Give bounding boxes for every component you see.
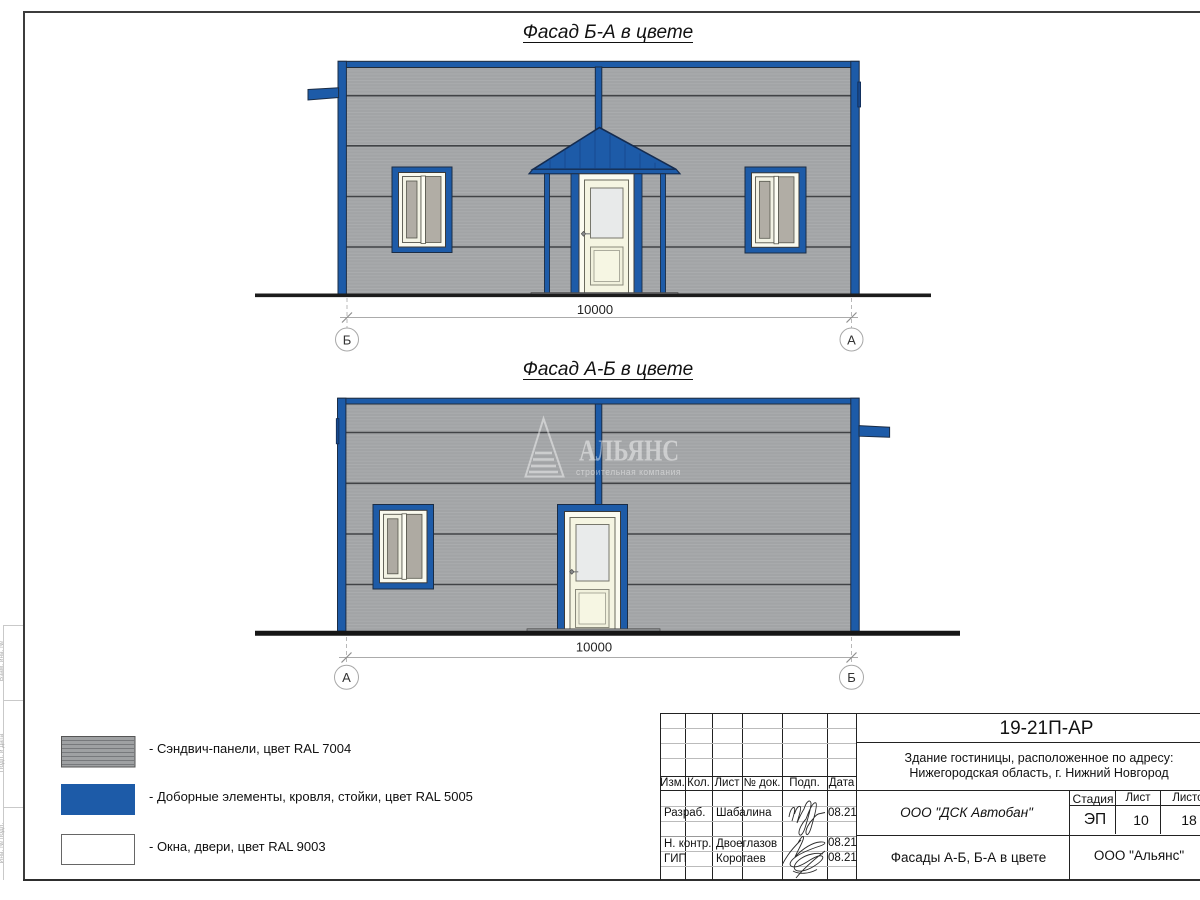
- svg-text:А: А: [342, 670, 351, 685]
- svg-text:строительная компания: строительная компания: [576, 467, 681, 478]
- svg-text:АЛЬЯНС: АЛЬЯНС: [579, 433, 679, 468]
- svg-text:Б: Б: [343, 332, 352, 347]
- svg-text:10000: 10000: [577, 302, 613, 317]
- svg-text:Б: Б: [847, 670, 856, 685]
- svg-text:А: А: [847, 332, 856, 347]
- svg-text:10000: 10000: [576, 640, 612, 655]
